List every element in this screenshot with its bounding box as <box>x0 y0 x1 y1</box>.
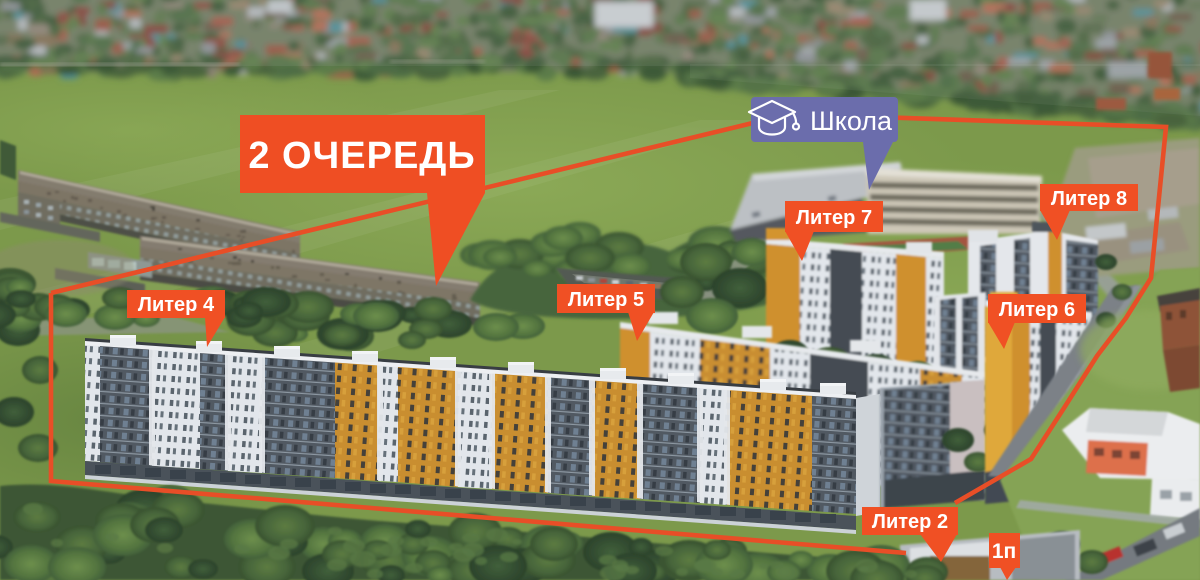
svg-text:Школа: Школа <box>810 106 893 136</box>
svg-text:2 ОЧЕРЕДЬ: 2 ОЧЕРЕДЬ <box>248 135 475 177</box>
svg-text:Литер 2: Литер 2 <box>872 511 948 533</box>
svg-text:Литер 8: Литер 8 <box>1051 188 1127 210</box>
svg-text:Литер 4: Литер 4 <box>138 294 215 316</box>
svg-text:1п: 1п <box>992 540 1016 563</box>
svg-text:Литер 5: Литер 5 <box>568 289 644 311</box>
svg-text:Литер 6: Литер 6 <box>999 299 1075 321</box>
svg-text:Литер 7: Литер 7 <box>796 207 872 229</box>
